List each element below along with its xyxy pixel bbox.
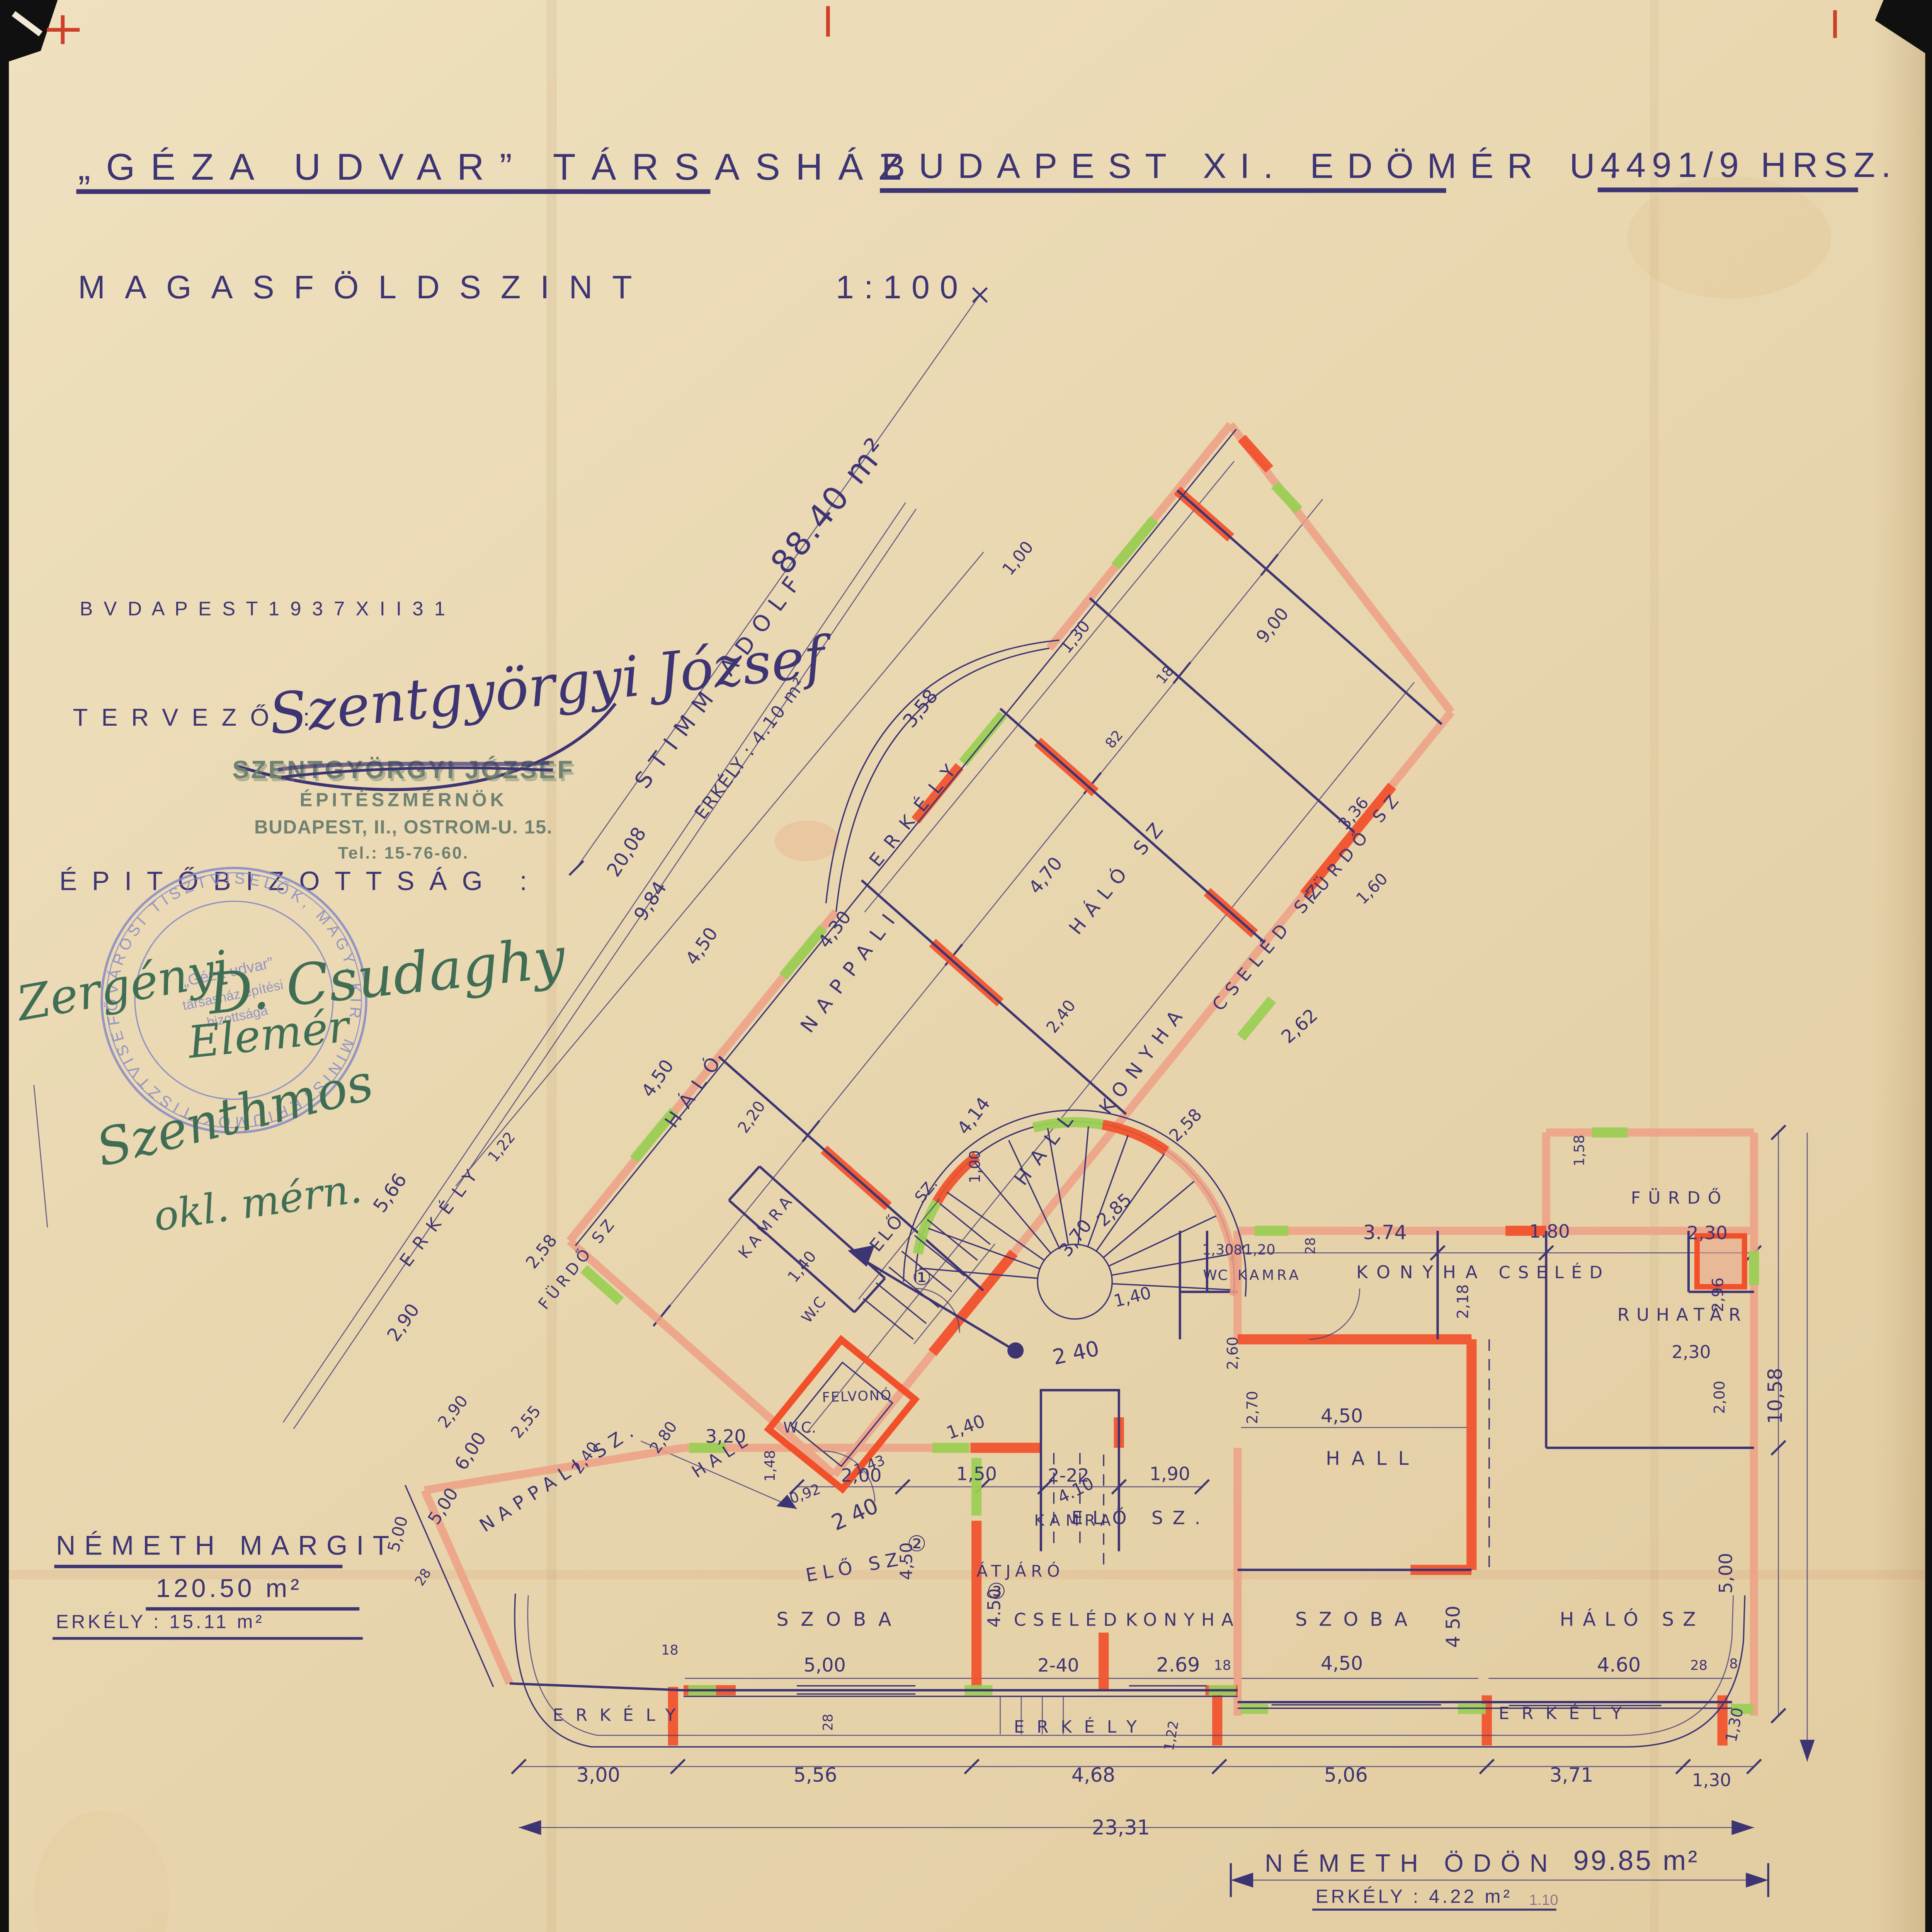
plan-label: KONYHA [1356, 1262, 1487, 1282]
plan-label: 2,70 [1244, 1391, 1261, 1424]
apartment-odon-balcony: ERKÉLY : 4.22 m² [1316, 1886, 1512, 1907]
plan-label: 1,48 [762, 1450, 778, 1482]
plan-label: SZOBA [776, 1608, 903, 1631]
plan-label: 2,00 [1711, 1381, 1728, 1414]
plan-label: 5,06 [1324, 1764, 1368, 1787]
plan-label: 8 [1233, 1242, 1242, 1258]
plan-label: CSELÉD [1014, 1609, 1124, 1630]
floor-plan-scan: „GÉZA UDVAR” TÁRSASHÁZ BUDAPEST XI. EDÖM… [0, 0, 1932, 1932]
plan-label: 1,30 [1202, 1242, 1234, 1258]
date-line: B V D A P E S T 1 9 3 7 X I I 3 1 [80, 598, 448, 620]
plan-label: FELVONÓ [822, 1387, 893, 1405]
plan-label: 2,00 [841, 1465, 881, 1486]
plan-label: ÁTJÁRÓ [976, 1561, 1065, 1580]
plan-label: 4,50 [896, 1542, 916, 1580]
plan-label: 2-22 [1048, 1465, 1089, 1486]
designer-stamp-address: BUDAPEST, II., OSTROM-U. 15. [254, 817, 553, 838]
plan-label: ERKÉLY [1014, 1716, 1149, 1737]
plan-label: ① [912, 1265, 931, 1291]
plan-label: 5,00 [1715, 1553, 1736, 1594]
plan-label: 2-40 [1037, 1655, 1079, 1676]
plan-label: 4.60 [1597, 1654, 1641, 1677]
plan-label: 1,50 [956, 1463, 997, 1485]
apartment-odon-name: NÉMETH ÖDÖN [1265, 1849, 1557, 1877]
plan-label: 2,18 [1454, 1284, 1472, 1319]
plan-label: ERKÉLY [1499, 1703, 1634, 1723]
plan-label: 2,30 [1672, 1342, 1711, 1362]
plan-label: 1,58 [1571, 1135, 1588, 1167]
plan-label: 1,00 [966, 1150, 984, 1184]
plan-label: 4,68 [1071, 1764, 1115, 1787]
plan-label: 4.50 [984, 1588, 1005, 1628]
scale-label: 1:100 [836, 269, 968, 305]
plan-label: 2.69 [1156, 1654, 1200, 1677]
plan-label: 4,50 [1321, 1405, 1363, 1427]
plan-label: KAMRA [1238, 1267, 1301, 1284]
apartment-odon-area: 99.85 m² [1573, 1845, 1699, 1876]
plan-label: 18 [661, 1642, 679, 1658]
plan-label: 8 [1729, 1656, 1738, 1672]
floor-label: MAGASFÖLDSZINT [78, 269, 652, 305]
plan-label: WC [1203, 1267, 1228, 1284]
fold-crease-vertical [1650, 0, 1659, 1932]
plan-label: CSELÉD [1499, 1262, 1610, 1282]
plan-label: RUHATÁR [1617, 1304, 1748, 1325]
plan-label: 5,00 [804, 1654, 846, 1676]
plan-label: SZOBA [1295, 1608, 1419, 1631]
plan-label: 28 [1303, 1237, 1318, 1255]
designer-stamp-title: ÉPITÉSZMÉRNÖK [300, 789, 507, 811]
plan-label: W.C. [783, 1419, 816, 1436]
plan-label: FÜRDŐ [1631, 1187, 1729, 1208]
plan-label: 28 [1690, 1658, 1708, 1673]
plan-label: HALL [1326, 1447, 1420, 1469]
plan-label: 2,30 [1687, 1223, 1728, 1244]
plan-label: 3.74 [1363, 1221, 1407, 1244]
page-title: „GÉZA UDVAR” TÁRSASHÁZ [78, 146, 917, 188]
header-parcel: 4491/9 HRSZ. [1600, 145, 1897, 185]
designer-stamp-phone: Tel.: 15-76-60. [338, 844, 469, 862]
plan-label: 23,31 [1092, 1816, 1150, 1839]
plan-label: 18 [1214, 1658, 1231, 1673]
plan-label: 1,20 [1244, 1242, 1276, 1258]
plan-label: 1,90 [1150, 1463, 1190, 1485]
plan-label: 2,60 [1224, 1337, 1242, 1370]
header-location: BUDAPEST XI. EDÖMÉR U. [882, 146, 1632, 186]
apartment-margit-balcony: ERKÉLY : 15.11 m² [56, 1611, 265, 1633]
plan-label: HÁLÓ SZ [1560, 1608, 1705, 1631]
plan-label: KONYHA [1126, 1610, 1240, 1630]
plan-label: 3,00 [577, 1764, 620, 1787]
plan-label: 28 [820, 1714, 836, 1731]
apartment-margit-name: NÉMETH MARGIT [56, 1530, 398, 1560]
plan-label: 3,71 [1549, 1764, 1593, 1787]
plan-label: 1,30 [1692, 1770, 1731, 1791]
plan-label: 10,58 [1764, 1368, 1787, 1424]
plan-label: ERKÉLY [553, 1704, 688, 1725]
apartment-odon-extra: 1.10 [1529, 1892, 1558, 1908]
plan-label: 4,50 [1321, 1652, 1363, 1675]
plan-label: 1.80 [1529, 1221, 1570, 1242]
apartment-margit-area: 120.50 m² [156, 1574, 303, 1603]
plan-label: 4 50 [1442, 1605, 1464, 1648]
plan-label: 5,56 [793, 1764, 837, 1787]
plan-label: KAMRA [1034, 1512, 1116, 1530]
